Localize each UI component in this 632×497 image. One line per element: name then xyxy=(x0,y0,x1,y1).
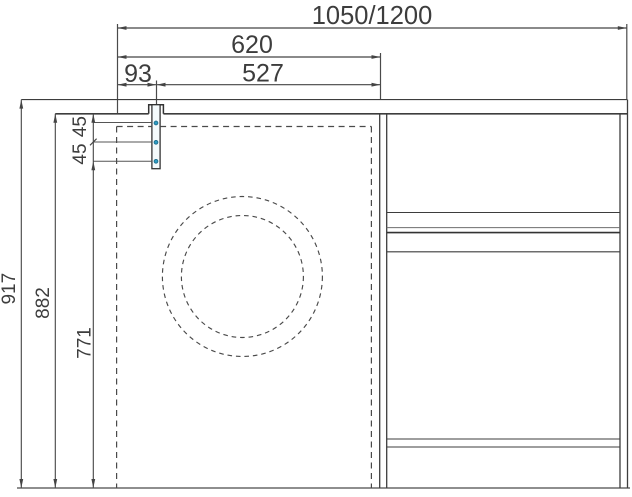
svg-text:93: 93 xyxy=(124,60,152,88)
svg-text:771: 771 xyxy=(74,327,95,359)
svg-text:1050/1200: 1050/1200 xyxy=(312,2,433,30)
svg-text:917: 917 xyxy=(0,273,20,305)
svg-text:45: 45 xyxy=(70,116,91,137)
svg-text:45: 45 xyxy=(70,143,91,164)
svg-text:527: 527 xyxy=(242,60,284,88)
svg-text:620: 620 xyxy=(231,31,273,59)
svg-text:882: 882 xyxy=(33,287,54,319)
